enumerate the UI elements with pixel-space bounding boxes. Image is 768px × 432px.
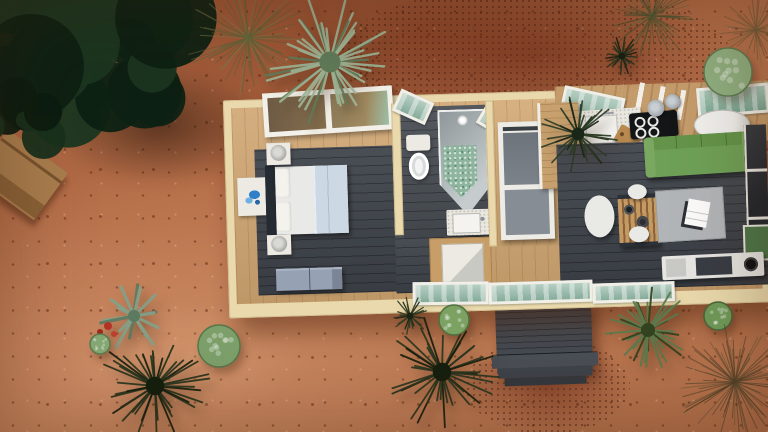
pillow-bottom — [276, 202, 292, 232]
grill-knob — [744, 257, 759, 272]
bench-pad — [666, 258, 687, 277]
cutting-board-hole — [619, 131, 624, 136]
bed-blanket — [313, 165, 349, 234]
bedroom-skylight — [262, 85, 395, 137]
bench-cushion — [696, 256, 733, 276]
dresser-divider — [309, 268, 311, 290]
shower-head — [457, 115, 467, 125]
storage-bench — [661, 252, 764, 281]
toilet-tank — [406, 134, 430, 151]
skylight-pane-right — [330, 91, 389, 129]
magazines — [684, 198, 710, 228]
burner-3 — [647, 115, 659, 127]
closet-panel-bottom — [505, 189, 550, 235]
bottom-window-3 — [592, 281, 675, 303]
bath-cabinet-shelf — [441, 243, 484, 284]
living-rug — [655, 187, 726, 243]
burner-1 — [634, 116, 646, 128]
pillow-top — [275, 168, 291, 198]
window-mullion-1 — [745, 168, 767, 172]
green-sofa — [643, 131, 753, 178]
wall-art — [237, 177, 266, 216]
window-mullion-2 — [747, 216, 768, 220]
bedroom-dresser — [276, 267, 343, 291]
bath-vanity — [446, 209, 491, 236]
shower-pebble-floor — [442, 145, 478, 198]
bottom-window-1 — [413, 281, 489, 305]
bowl-1 — [624, 204, 634, 214]
bottom-window-2 — [488, 280, 593, 305]
skylight-pane-left — [267, 95, 326, 133]
vanity-sink — [452, 213, 481, 234]
bed — [275, 165, 349, 235]
vanity-faucet — [480, 217, 484, 221]
tiny-house — [223, 84, 768, 318]
desert-scene — [0, 0, 768, 432]
